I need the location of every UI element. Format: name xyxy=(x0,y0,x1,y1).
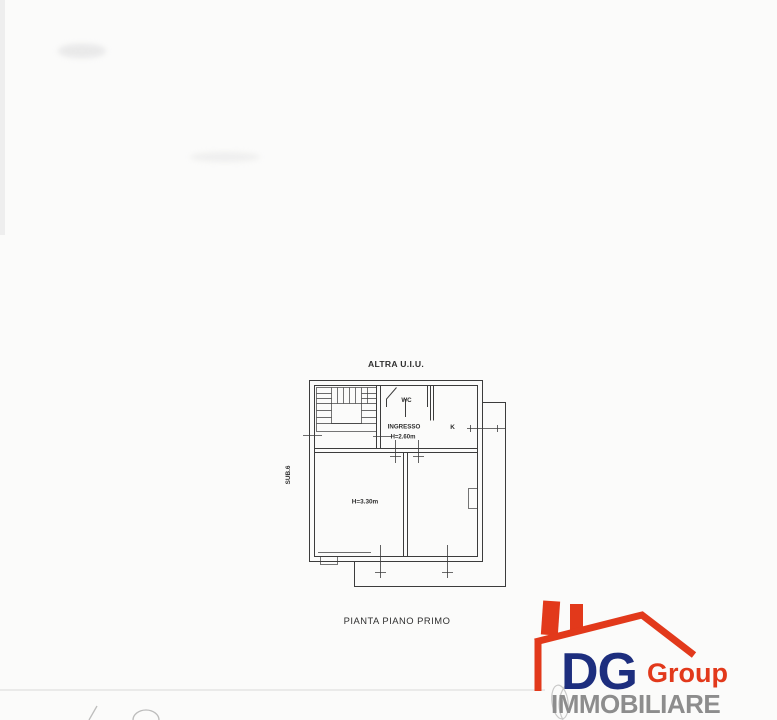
room-height-label: H=3.30m xyxy=(352,499,379,506)
plan-title: ALTRA U.I.U. xyxy=(368,359,424,369)
floor-plan: ALTRA U.I.U. SUB.6 WC INGRESSO H=2.60m K… xyxy=(270,350,520,635)
room-label-wc: WC xyxy=(401,397,412,404)
scan-fold-line xyxy=(0,689,545,691)
bottom-window xyxy=(321,557,338,565)
wc-threshold xyxy=(386,406,428,411)
scan-edge-artifact xyxy=(0,0,5,235)
plan-walls xyxy=(310,381,483,562)
room-label-ingresso: INGRESSO xyxy=(388,424,421,431)
scanned-page: { "plan": { "title": "ALTRA U.I.U.", "su… xyxy=(0,0,777,720)
scan-smudge xyxy=(190,152,260,162)
room-divider-wall xyxy=(404,453,408,557)
agency-logo: DG Group IMMOBILIARE xyxy=(530,592,777,720)
signature-mark xyxy=(80,700,170,720)
logo-tagline: IMMOBILIARE xyxy=(551,689,720,719)
outer-wall xyxy=(310,381,483,562)
windows xyxy=(318,489,478,565)
stair-wall xyxy=(377,386,381,449)
stair-treads-top xyxy=(332,388,368,404)
sub-label: SUB.6 xyxy=(285,465,292,484)
stair-well xyxy=(332,404,362,424)
logo-suffix: Group xyxy=(647,658,728,688)
ingresso-height-label: H=2.60m xyxy=(391,435,416,441)
outer-wall-inner xyxy=(315,386,478,557)
kitchen-counter-stub xyxy=(434,424,447,428)
scan-smudge xyxy=(58,44,106,58)
plan-text: ALTRA U.I.U. SUB.6 WC INGRESSO H=2.60m K… xyxy=(285,359,455,626)
wall-fills xyxy=(386,406,482,509)
stairs xyxy=(317,388,377,432)
chimney-left xyxy=(541,600,560,635)
stair-treads-right xyxy=(362,394,377,418)
kitchen-wall xyxy=(431,386,434,421)
partition-wall xyxy=(315,449,478,453)
plan-caption: PIANTA PIANO PRIMO xyxy=(344,615,451,626)
right-window xyxy=(469,489,478,509)
room-label-kitchen: K xyxy=(450,424,455,431)
